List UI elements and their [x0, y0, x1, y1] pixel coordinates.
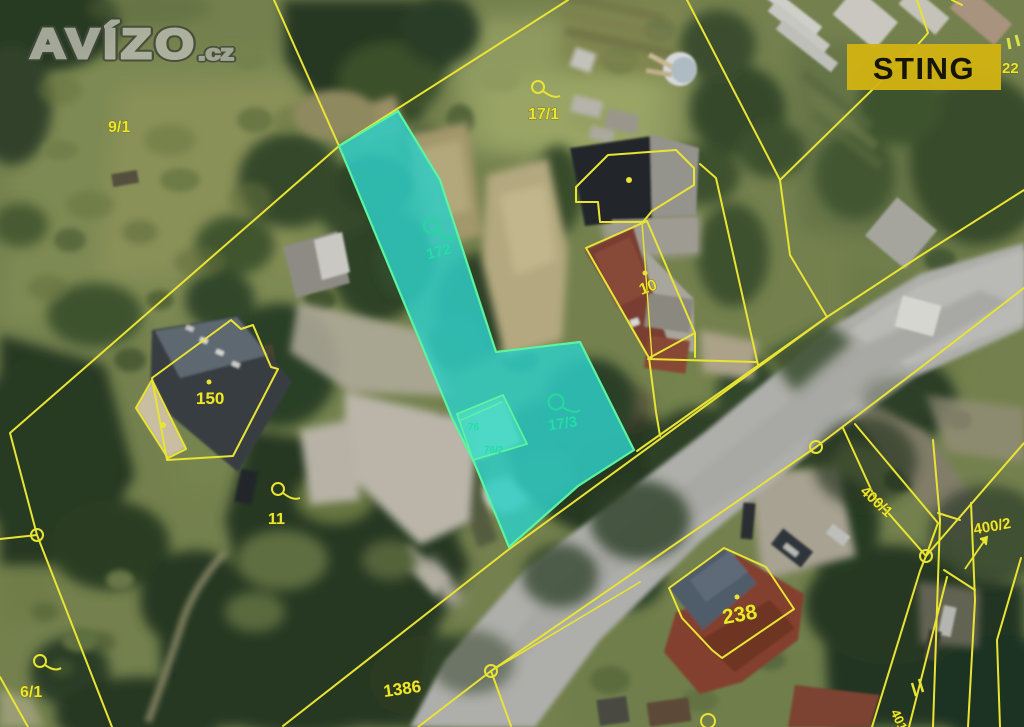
svg-text:.cz: .cz	[198, 42, 234, 65]
svg-text:11: 11	[268, 511, 285, 528]
svg-text:STING: STING	[873, 51, 975, 86]
svg-text:6/1: 6/1	[20, 684, 42, 701]
svg-text:150: 150	[196, 389, 224, 408]
svg-text:9/1: 9/1	[108, 119, 130, 136]
svg-text:22: 22	[1002, 60, 1019, 77]
svg-text:AVÍZO: AVÍZO	[30, 20, 198, 67]
svg-text:76/2: 76/2	[484, 445, 504, 456]
svg-text:17/1: 17/1	[528, 106, 559, 123]
svg-text:76: 76	[468, 422, 480, 433]
